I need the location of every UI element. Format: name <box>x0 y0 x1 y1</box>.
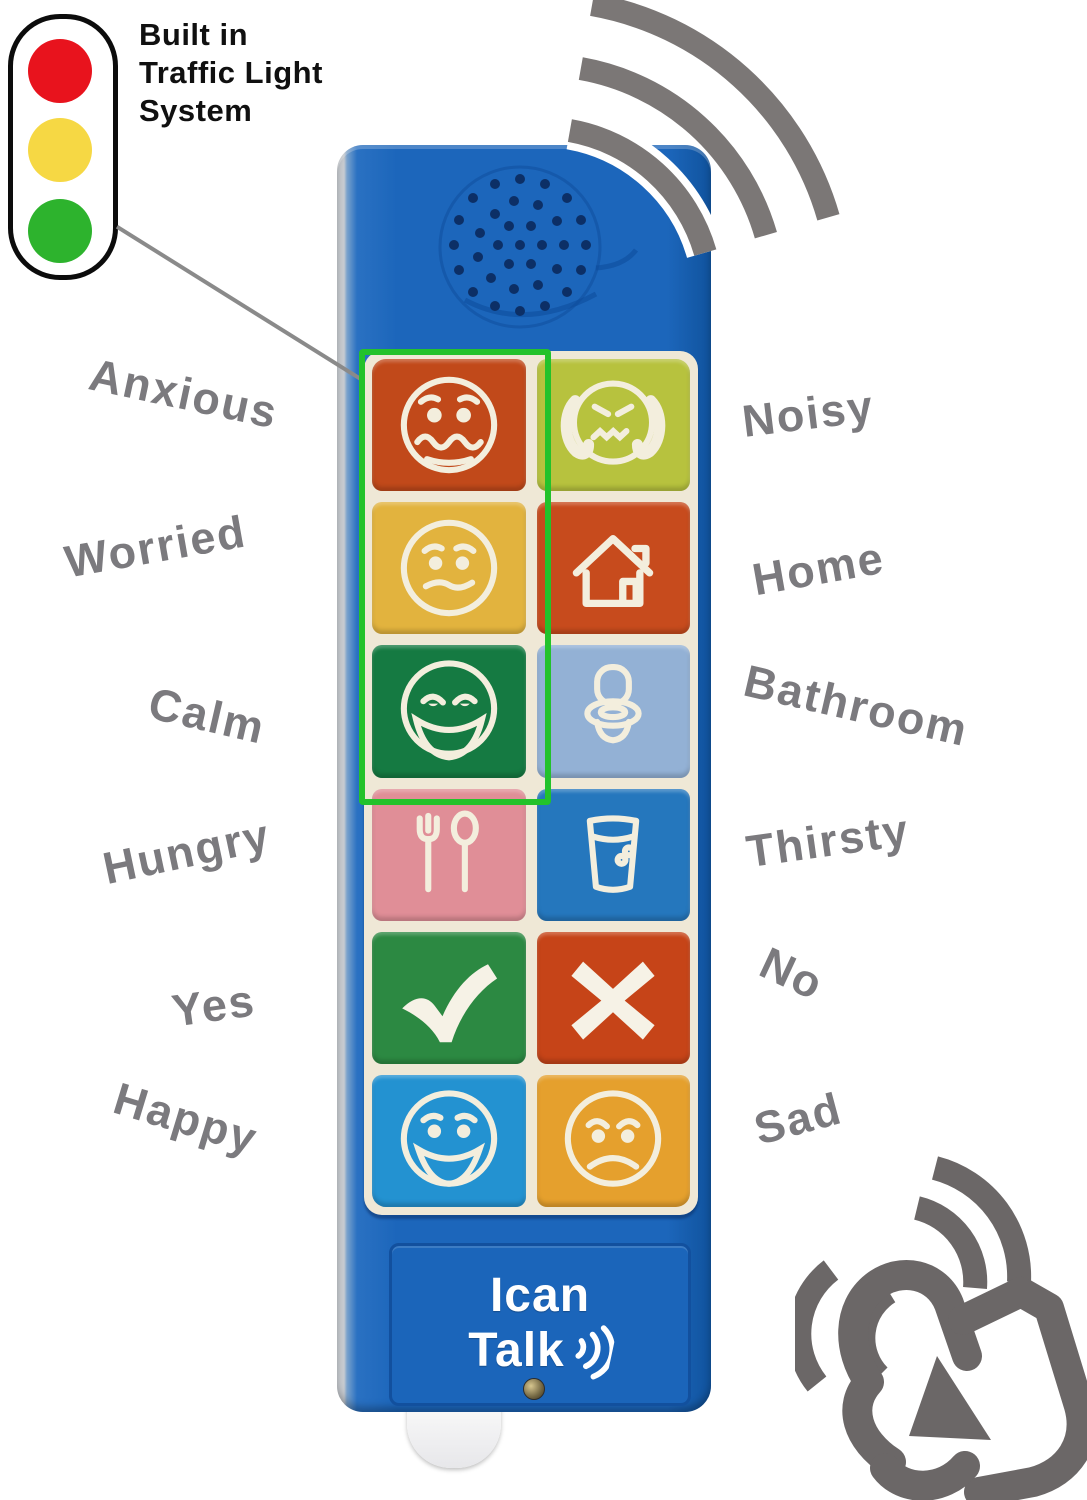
traffic-green-light <box>28 199 92 263</box>
caption-line-3: System <box>139 92 323 130</box>
fork-spoon-icon <box>388 794 510 916</box>
traffic-light-highlight-box <box>359 349 551 805</box>
callout-no-label: No <box>752 937 832 1011</box>
callout-thirsty-label: Thirsty <box>743 804 913 878</box>
sad-face-icon <box>552 1080 674 1202</box>
callout-home-label: Home <box>748 532 888 606</box>
callout-happy-label: Happy <box>108 1073 264 1166</box>
screw <box>523 1378 545 1400</box>
cross-icon <box>548 933 678 1063</box>
product-annotation-scene: Built in Traffic Light System <box>0 0 1087 1500</box>
callout-calm-label: Calm <box>144 677 271 754</box>
key-home[interactable] <box>537 502 691 634</box>
noisy-face-icon <box>552 364 674 486</box>
brand-line-1: Ican <box>490 1270 590 1322</box>
tap-hand-icon <box>795 1140 1087 1500</box>
key-thirsty[interactable] <box>537 789 691 921</box>
water-glass-icon <box>552 794 674 916</box>
key-hungry[interactable] <box>372 789 526 921</box>
callout-yes-label: Yes <box>169 974 259 1037</box>
caption-line-2: Traffic Light <box>139 54 323 92</box>
caption-line-1: Built in <box>139 16 323 54</box>
toilet-icon <box>552 650 674 772</box>
callout-noisy-label: Noisy <box>739 380 877 448</box>
traffic-amber-light <box>28 118 92 182</box>
traffic-red-light <box>28 39 92 103</box>
key-bathroom[interactable] <box>537 645 691 777</box>
traffic-light-icon <box>8 14 118 280</box>
callout-worried-label: Worried <box>61 505 250 588</box>
checkmark-icon <box>384 933 514 1063</box>
speaker-sound-arcs-icon <box>540 0 880 270</box>
callout-bathroom-label: Bathroom <box>739 655 973 757</box>
key-yes[interactable] <box>372 932 526 1064</box>
key-no[interactable] <box>537 932 691 1064</box>
key-sad[interactable] <box>537 1075 691 1207</box>
key-happy[interactable] <box>372 1075 526 1207</box>
brand-sound-waves-icon <box>566 1318 617 1383</box>
key-noisy[interactable] <box>537 359 691 491</box>
traffic-light-caption: Built in Traffic Light System <box>139 16 323 130</box>
callout-anxious-label: Anxious <box>85 349 283 440</box>
home-icon <box>552 507 674 629</box>
brand-line-2: Talk <box>468 1325 564 1377</box>
callout-hungry-label: Hungry <box>98 809 275 895</box>
happy-face-icon <box>388 1080 510 1202</box>
